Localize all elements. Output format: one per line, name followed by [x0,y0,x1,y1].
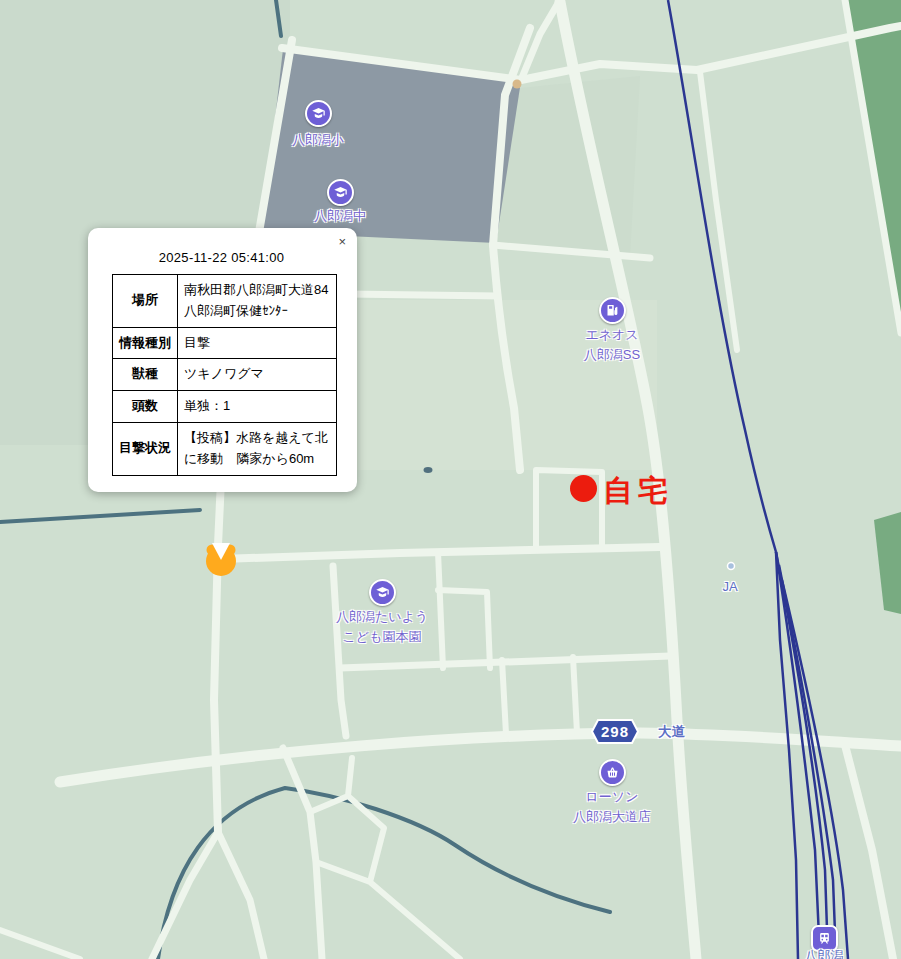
table-row: 目撃状況 【投稿】水路を越えて北に移動 隣家から60m [113,422,337,475]
label-line: 八郎潟たいよう [336,607,428,627]
field-label: 情報種別 [113,327,178,359]
label-line: こども園本園 [336,627,428,647]
home-dot [570,475,597,502]
sighting-info-popup: × 2025-11-22 05:41:00 場所 南秋田郡八郎潟町大道84八郎潟… [88,228,357,492]
road-name-omichi: 大道 [658,723,685,741]
school-icon [327,179,354,206]
table-row: 場所 南秋田郡八郎潟町大道84八郎潟町保健ｾﾝﾀｰ [113,275,337,328]
pond-dot [424,467,433,473]
table-row: 情報種別 目撃 [113,327,337,359]
label-line: ローソン [573,787,651,807]
field-label: 場所 [113,275,178,328]
label-line: 八郎潟大道店 [573,807,651,827]
marker-kindergarten[interactable] [369,579,396,606]
field-value: 【投稿】水路を越えて北に移動 隣家から60m [178,422,337,475]
ja-poi-dot [728,563,735,570]
field-value: ツキノワグマ [178,359,337,391]
school-icon [369,579,396,606]
field-label: 頭数 [113,391,178,423]
label-ja[interactable]: JA [722,577,737,597]
field-label: 目撃状況 [113,422,178,475]
sighting-details-table: 場所 南秋田郡八郎潟町大道84八郎潟町保健ｾﾝﾀｰ 情報種別 目撃 獣種 ツキノ… [112,274,337,476]
gas-pump-icon [599,297,626,324]
label-convenience-store[interactable]: ローソン 八郎潟大道店 [573,787,651,827]
home-label: 自宅 [603,476,673,506]
table-row: 頭数 単独：1 [113,391,337,423]
poi-dot [513,80,522,89]
school-icon [305,100,332,127]
marker-elementary-school[interactable] [305,100,332,127]
field-value: 南秋田郡八郎潟町大道84八郎潟町保健ｾﾝﾀｰ [178,275,337,328]
bear-sighting-marker[interactable] [206,543,236,576]
label-kindergarten[interactable]: 八郎潟たいよう こども園本園 [336,607,428,647]
popup-close-button[interactable]: × [336,233,348,250]
label-line: エネオス [584,325,640,345]
label-elementary-school[interactable]: 八郎潟小 [292,130,344,150]
marker-junior-high-school[interactable] [327,179,354,206]
sighting-datetime: 2025-11-22 05:41:00 [112,250,331,265]
label-line: 八郎潟SS [584,345,640,365]
label-gas-station[interactable]: エネオス 八郎潟SS [584,325,640,365]
marker-convenience-store[interactable] [599,759,626,786]
route-number: 298 [601,723,629,740]
table-row: 獣種 ツキノワグマ [113,359,337,391]
shopping-basket-icon [599,759,626,786]
marker-gas-station[interactable] [599,297,626,324]
label-train-station[interactable]: 八郎潟 [805,946,844,959]
field-value: 目撃 [178,327,337,359]
label-junior-high-school[interactable]: 八郎潟中 [314,206,366,226]
field-label: 獣種 [113,359,178,391]
route-298-shield: 298 [591,719,639,744]
field-value: 単独：1 [178,391,337,423]
map-screenshot: { "popup": { "close_label": "×", "dateti… [0,0,901,959]
